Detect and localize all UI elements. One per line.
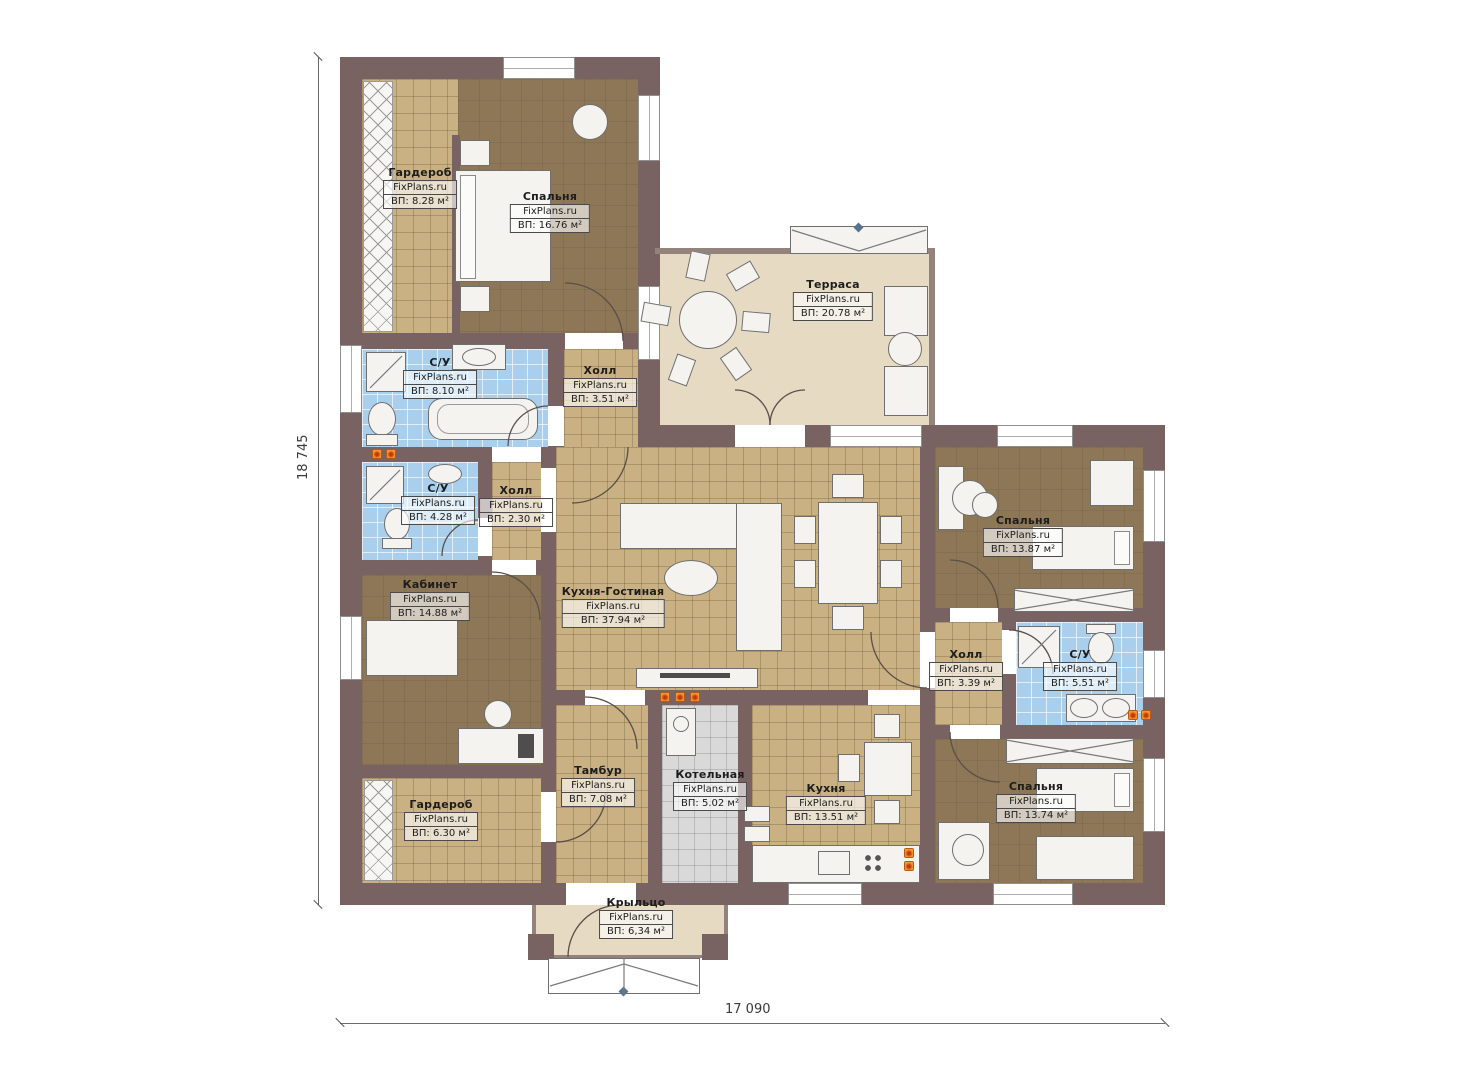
room-watermark: FixPlans.ru bbox=[383, 180, 457, 195]
passage-holl bbox=[492, 447, 541, 462]
tv-stand bbox=[636, 668, 758, 688]
room-name: С/У bbox=[403, 356, 477, 369]
room-watermark: FixPlans.ru bbox=[561, 778, 635, 793]
room-area: ВП: 6.30 м² bbox=[404, 826, 478, 841]
vent-marker-6 bbox=[1141, 710, 1151, 720]
vent-marker-5 bbox=[1128, 710, 1138, 720]
armchair-top bbox=[572, 104, 608, 140]
room-watermark: FixPlans.ru bbox=[510, 204, 590, 219]
room-label-spalnya-bottom: Спальня FixPlans.ru ВП: 13.74 м² bbox=[996, 780, 1076, 823]
door-gap-garderob-bottom bbox=[541, 792, 556, 842]
vent-marker-2 bbox=[386, 449, 396, 459]
room-label-terrasa: Терраса FixPlans.ru ВП: 20.78 м² bbox=[793, 278, 873, 321]
toilet-bowl-1 bbox=[368, 402, 396, 436]
dimension-line-horizontal bbox=[340, 1023, 1165, 1024]
porch-pillar-right bbox=[702, 934, 728, 960]
stove-burners bbox=[862, 852, 884, 874]
dining-chair-2 bbox=[794, 560, 816, 588]
toilet-tank-2 bbox=[382, 538, 412, 549]
room-label-spalnya-right: Спальня FixPlans.ru ВП: 13.87 м² bbox=[983, 514, 1063, 557]
room-name: Холл bbox=[563, 364, 637, 377]
nightstand-2 bbox=[460, 286, 490, 312]
room-label-kuhnya-gostinaya: Кухня-Гостиная FixPlans.ru ВП: 37.94 м² bbox=[562, 585, 665, 628]
daybed bbox=[366, 620, 458, 676]
window-7 bbox=[997, 425, 1073, 447]
room-name: Холл bbox=[479, 484, 553, 497]
room-area: ВП: 2.30 м² bbox=[479, 512, 553, 527]
double-sink-bowl-2 bbox=[1102, 698, 1130, 718]
window-1 bbox=[503, 57, 575, 79]
door-gap-tambur bbox=[585, 690, 645, 705]
vent-marker-1 bbox=[372, 449, 382, 459]
room-watermark: FixPlans.ru bbox=[929, 662, 1003, 677]
wall-int-10 bbox=[648, 705, 662, 883]
terrace-armchair-1 bbox=[884, 286, 928, 336]
door-gap-spalnya-top bbox=[565, 333, 623, 349]
room-area: ВП: 5.51 м² bbox=[1043, 676, 1117, 691]
fireplace-flame-3 bbox=[690, 692, 700, 702]
fireplace-flame-1 bbox=[660, 692, 670, 702]
room-area: ВП: 4.28 м² bbox=[401, 510, 475, 525]
room-label-su-right: С/У FixPlans.ru ВП: 5.51 м² bbox=[1043, 648, 1117, 691]
room-watermark: FixPlans.ru bbox=[390, 592, 470, 607]
french-door-gap bbox=[735, 425, 805, 447]
porch-pillar-left bbox=[528, 934, 554, 960]
window-5 bbox=[340, 616, 362, 680]
room-name: Котельная bbox=[673, 768, 747, 781]
room-watermark: FixPlans.ru bbox=[563, 378, 637, 393]
toilet-tank-1 bbox=[366, 434, 398, 446]
door-gap-kabinet bbox=[492, 560, 536, 575]
bed-pillow bbox=[1114, 773, 1130, 807]
vent-marker-3 bbox=[904, 848, 914, 858]
room-watermark: FixPlans.ru bbox=[786, 796, 866, 811]
room-watermark: FixPlans.ru bbox=[983, 528, 1063, 543]
room-area: ВП: 7.08 м² bbox=[561, 792, 635, 807]
kitchen-chair-1 bbox=[874, 714, 900, 738]
floor-plan: Гардероб FixPlans.ru ВП: 8.28 м² Спальня… bbox=[0, 0, 1474, 1080]
room-watermark: FixPlans.ru bbox=[403, 370, 477, 385]
shower-2 bbox=[366, 466, 404, 504]
dimension-line-vertical bbox=[318, 57, 319, 905]
dining-chair-3 bbox=[880, 516, 902, 544]
printer bbox=[518, 734, 534, 758]
room-label-holl-mid: Холл FixPlans.ru ВП: 2.30 м² bbox=[479, 484, 553, 527]
room-area: ВП: 6,34 м² bbox=[599, 924, 673, 939]
room-name: Гардероб bbox=[404, 798, 478, 811]
nightstand-1 bbox=[460, 140, 490, 166]
cabinet-right bbox=[1090, 460, 1134, 506]
door-gap-su-right bbox=[1002, 630, 1016, 674]
room-name: Кухня bbox=[786, 782, 866, 795]
room-area: ВП: 14.88 м² bbox=[390, 606, 470, 621]
bed-pillow bbox=[1114, 531, 1130, 565]
room-watermark: FixPlans.ru bbox=[599, 910, 673, 925]
door-gap-kuhnya bbox=[868, 690, 920, 705]
room-watermark: FixPlans.ru bbox=[401, 496, 475, 511]
terrace-table bbox=[679, 291, 737, 349]
room-area: ВП: 20.78 м² bbox=[793, 306, 873, 321]
room-name: Гардероб bbox=[383, 166, 457, 179]
window-6 bbox=[830, 425, 922, 447]
room-area: ВП: 5.02 м² bbox=[673, 796, 747, 811]
room-area: ВП: 3.39 м² bbox=[929, 676, 1003, 691]
terrace-chair-3 bbox=[741, 311, 771, 333]
dining-table bbox=[818, 502, 878, 604]
room-watermark: FixPlans.ru bbox=[404, 812, 478, 827]
room-area: ВП: 3.51 м² bbox=[563, 392, 637, 407]
closet-strip-right-2 bbox=[1006, 738, 1134, 764]
room-label-holl-right: Холл FixPlans.ru ВП: 3.39 м² bbox=[929, 648, 1003, 691]
window-12 bbox=[993, 883, 1073, 905]
room-name: Кухня-Гостиная bbox=[562, 585, 665, 598]
room-name: С/У bbox=[401, 482, 475, 495]
boiler-dial bbox=[673, 716, 689, 732]
room-area: ВП: 13.51 м² bbox=[786, 810, 866, 825]
meter-box-2 bbox=[744, 826, 770, 842]
window-10 bbox=[1143, 758, 1165, 832]
room-watermark: FixPlans.ru bbox=[996, 794, 1076, 809]
room-label-krylco: Крыльцо FixPlans.ru ВП: 6,34 м² bbox=[599, 896, 673, 939]
room-area: ВП: 8.28 м² bbox=[383, 194, 457, 209]
shower-1 bbox=[366, 352, 406, 392]
wall-left bbox=[340, 57, 362, 905]
room-area: ВП: 8.10 м² bbox=[403, 384, 477, 399]
room-watermark: FixPlans.ru bbox=[1043, 662, 1117, 677]
room-label-kabinet: Кабинет FixPlans.ru ВП: 14.88 м² bbox=[390, 578, 470, 621]
dimension-horizontal-label: 17 090 bbox=[725, 1002, 771, 1017]
room-area: ВП: 13.74 м² bbox=[996, 808, 1076, 823]
bed-pillow bbox=[460, 175, 476, 279]
door-gap-spalnya-right bbox=[950, 608, 998, 622]
window-11 bbox=[788, 883, 862, 905]
kitchen-sink bbox=[818, 851, 850, 875]
room-label-garderob-bottom: Гардероб FixPlans.ru ВП: 6.30 м² bbox=[404, 798, 478, 841]
room-label-su-mid: С/У FixPlans.ru ВП: 4.28 м² bbox=[401, 482, 475, 525]
room-area: ВП: 37.94 м² bbox=[562, 613, 665, 628]
window-4 bbox=[340, 345, 362, 413]
room-label-holl-top: Холл FixPlans.ru ВП: 3.51 м² bbox=[563, 364, 637, 407]
vent-marker-4 bbox=[904, 861, 914, 871]
room-label-spalnya-top: Спальня FixPlans.ru ВП: 16.76 м² bbox=[510, 190, 590, 233]
kitchen-table bbox=[864, 742, 912, 796]
room-area: ВП: 16.76 м² bbox=[510, 218, 590, 233]
room-label-su-top: С/У FixPlans.ru ВП: 8.10 м² bbox=[403, 356, 477, 399]
window-9 bbox=[1143, 650, 1165, 698]
bathtub-inner bbox=[437, 404, 529, 434]
window-2 bbox=[638, 95, 660, 161]
room-area: ВП: 13.87 м² bbox=[983, 542, 1063, 557]
room-name: Кабинет bbox=[390, 578, 470, 591]
kitchen-chair-3 bbox=[838, 754, 860, 782]
sink-bowl-2 bbox=[428, 464, 462, 484]
chair-bottom-bedroom bbox=[952, 834, 984, 866]
room-name: Терраса bbox=[793, 278, 873, 291]
room-label-kuhnya: Кухня FixPlans.ru ВП: 13.51 м² bbox=[786, 782, 866, 825]
room-watermark: FixPlans.ru bbox=[793, 292, 873, 307]
wall-top-left-wing bbox=[340, 57, 660, 79]
room-watermark: FixPlans.ru bbox=[562, 599, 665, 614]
room-name: Спальня bbox=[996, 780, 1076, 793]
room-label-garderob-top: Гардероб FixPlans.ru ВП: 8.28 м² bbox=[383, 166, 457, 209]
closet-strip-right-1 bbox=[1014, 588, 1134, 612]
coffee-table bbox=[664, 560, 718, 596]
office-chair bbox=[484, 700, 512, 728]
meter-box-1 bbox=[744, 806, 770, 822]
room-name: С/У bbox=[1043, 648, 1117, 661]
room-name: Крыльцо bbox=[599, 896, 673, 909]
dining-chair-4 bbox=[880, 560, 902, 588]
dining-chair-1 bbox=[794, 516, 816, 544]
room-label-tambur: Тамбур FixPlans.ru ВП: 7.08 м² bbox=[561, 764, 635, 807]
dimension-vertical-label: 18 745 bbox=[296, 435, 311, 481]
closet-hatch-bottom bbox=[364, 780, 393, 881]
window-8 bbox=[1143, 470, 1165, 542]
room-watermark: FixPlans.ru bbox=[479, 498, 553, 513]
fireplace-flame-2 bbox=[675, 692, 685, 702]
dining-chair-5 bbox=[832, 474, 864, 498]
kitchen-chair-2 bbox=[874, 800, 900, 824]
bed-single-3 bbox=[1036, 836, 1134, 880]
room-label-kotelnaya: Котельная FixPlans.ru ВП: 5.02 м² bbox=[673, 768, 747, 811]
room-watermark: FixPlans.ru bbox=[673, 782, 747, 797]
dining-chair-6 bbox=[832, 606, 864, 630]
terrace-armchair-2 bbox=[884, 366, 928, 416]
room-name: Спальня bbox=[510, 190, 590, 203]
door-gap-su-top bbox=[548, 406, 564, 446]
terrace-side-table bbox=[888, 332, 922, 366]
sofa-vertical bbox=[736, 503, 782, 651]
room-name: Спальня bbox=[983, 514, 1063, 527]
double-sink-bowl-1 bbox=[1070, 698, 1098, 718]
room-name: Тамбур bbox=[561, 764, 635, 777]
bathtub bbox=[428, 398, 538, 440]
door-gap-spalnya-bottom bbox=[950, 725, 1000, 739]
terrace-edge-right bbox=[929, 248, 935, 425]
tv-screen bbox=[660, 673, 730, 678]
wall-int-6 bbox=[362, 765, 541, 778]
room-name: Холл bbox=[929, 648, 1003, 661]
